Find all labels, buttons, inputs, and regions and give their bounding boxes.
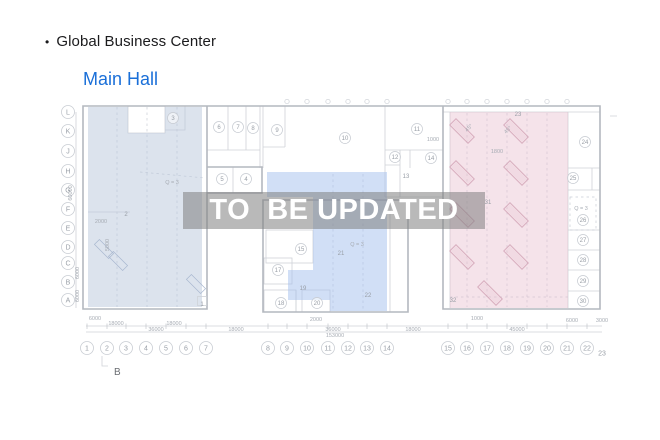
column-label: 11 <box>324 345 331 352</box>
row-label: C <box>65 260 70 267</box>
row-label: E <box>66 225 71 232</box>
plan-annotation: 2000 <box>95 219 107 225</box>
column-label: 17 <box>483 345 491 352</box>
room-number: 1 <box>200 302 204 308</box>
grid-tick-circle <box>385 99 389 103</box>
dimension-label: 2000 <box>310 317 322 323</box>
row-label: A <box>66 297 71 304</box>
room-number: 31 <box>485 200 492 206</box>
column-label: 15 <box>444 345 452 352</box>
room-number: 30 <box>580 299 587 305</box>
room-number: 18 <box>278 301 285 307</box>
grid-tick-circle <box>285 99 289 103</box>
column-label: 2 <box>105 345 109 352</box>
row-label: L <box>66 109 70 116</box>
grid-tick-circle <box>505 99 509 103</box>
room-number: 13 <box>403 174 410 180</box>
row-label: D <box>65 244 70 251</box>
room-number: 22 <box>365 293 372 299</box>
room-number: 26 <box>580 218 587 224</box>
plan-annotation: 5000 <box>105 239 111 251</box>
column-label: 12 <box>344 345 352 352</box>
column-label: 13 <box>363 345 371 352</box>
column-label: 8 <box>266 345 270 352</box>
plan-annotation: Q = 3 <box>350 242 364 248</box>
room-number: 29 <box>580 279 587 285</box>
column-axis-labels: 1234567891011121314151617181920212223 <box>81 342 606 358</box>
row-label: H <box>65 168 70 175</box>
grid-tick-circle <box>465 99 469 103</box>
plan-annotation: Q = 3 <box>574 206 588 212</box>
room-number: 11 <box>414 127 421 133</box>
grid-tick-circle <box>565 99 569 103</box>
dimension-label: 36000 <box>148 327 163 333</box>
dimension-label: 6000 <box>75 290 81 302</box>
column-label: 18 <box>503 345 511 352</box>
dimension-label: 6000 <box>89 316 101 322</box>
dimension-label: 1000 <box>471 316 483 322</box>
room-number: 23 <box>515 112 522 118</box>
column-label: 16 <box>463 345 471 352</box>
column-label: 23 <box>598 350 606 357</box>
room-number: 19 <box>300 286 307 292</box>
section-marker-b: B <box>114 367 121 378</box>
grid-tick-circle <box>485 99 489 103</box>
row-axis-labels: LKJHGFEDCBA <box>62 106 75 307</box>
grid-tick-circle <box>525 99 529 103</box>
watermark-banner: TO BE UPDATED <box>183 192 485 229</box>
floor-plan-page: • Global Business Center Main Hall <box>0 0 660 440</box>
row-label: F <box>66 206 70 213</box>
dimension-label: 60000 <box>68 185 74 200</box>
column-label: 14 <box>383 345 391 352</box>
dimension-label: 45000 <box>509 327 524 333</box>
room-number: 10 <box>342 136 349 142</box>
column-label: 6 <box>184 345 188 352</box>
plan-annotation: Q = 3 <box>165 180 179 186</box>
dimension-label: 18000 <box>108 321 123 327</box>
room-number: 20 <box>314 301 321 307</box>
column-label: 7 <box>204 345 208 352</box>
column-label: 4 <box>144 345 148 352</box>
column-label: 21 <box>563 345 571 352</box>
room-number: 25 <box>570 176 577 182</box>
column-label: 10 <box>303 345 311 352</box>
room-number: 21 <box>338 251 345 257</box>
room-number: 28 <box>580 258 587 264</box>
column-label: 1 <box>85 345 89 352</box>
column-label: 9 <box>285 345 289 352</box>
room-number: 14 <box>428 156 435 162</box>
row-label: J <box>66 148 70 155</box>
room-number: 32 <box>450 298 457 304</box>
dimension-label: 18000 <box>405 327 420 333</box>
column-label: 3 <box>124 345 128 352</box>
column-label: 20 <box>543 345 551 352</box>
room-number: 24 <box>582 140 589 146</box>
grid-tick-circle <box>305 99 309 103</box>
plan-annotation: 1800 <box>491 149 503 155</box>
room-number: 15 <box>298 247 305 253</box>
plan-annotation: 1000 <box>427 137 439 143</box>
grid-tick-circle <box>365 99 369 103</box>
dimension-label: 3000 <box>596 318 608 324</box>
dimension-label: 6000 <box>75 267 81 279</box>
room-number: 27 <box>580 238 587 244</box>
grid-tick-circle <box>446 99 450 103</box>
dimension-label: 18000 <box>228 327 243 333</box>
grid-tick-circle <box>346 99 350 103</box>
column-label: 19 <box>523 345 531 352</box>
column-label: 5 <box>164 345 168 352</box>
grid-tick-circle <box>545 99 549 103</box>
dimension-label: 6000 <box>566 318 578 324</box>
dimension-label: 153000 <box>326 333 344 339</box>
row-label: K <box>66 128 71 135</box>
room-number: 12 <box>392 155 399 161</box>
dimension-label: 18000 <box>166 321 181 327</box>
room-number: 17 <box>275 268 282 274</box>
row-label: B <box>66 279 71 286</box>
grid-tick-circle <box>326 99 330 103</box>
column-label: 22 <box>583 345 591 352</box>
